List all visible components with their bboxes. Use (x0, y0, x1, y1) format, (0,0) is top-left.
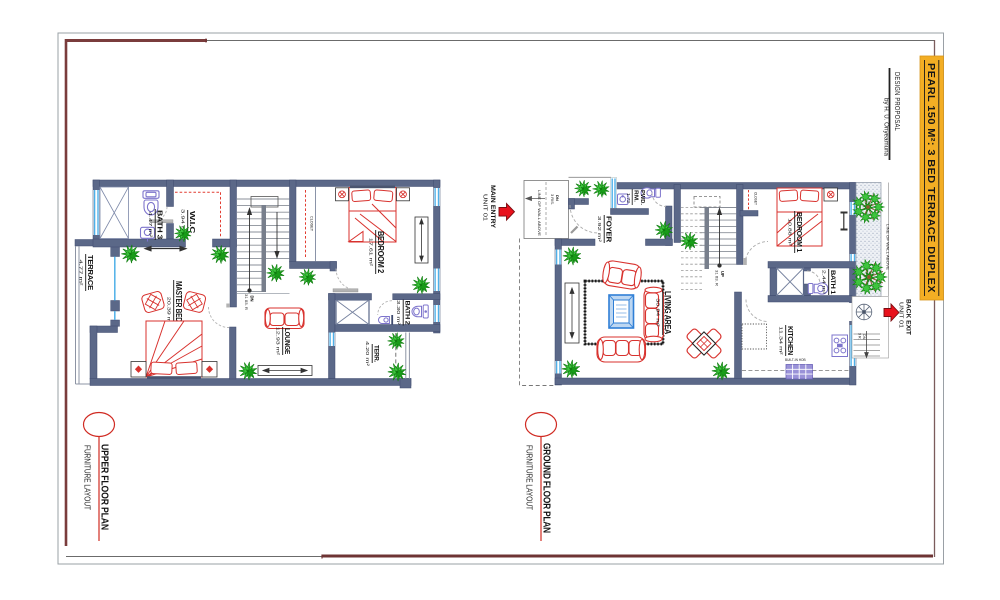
svg-text:BUILT-IN HOB: BUILT-IN HOB (785, 358, 806, 362)
svg-text:FURNITURE LAYOUT: FURNITURE LAYOUT (525, 445, 534, 510)
svg-text:LOUNGE: LOUNGE (283, 328, 292, 354)
svg-text:CLOSET: CLOSET (754, 192, 758, 206)
svg-text:2.44 m²: 2.44 m² (821, 270, 826, 295)
svg-text:KITCHEN: KITCHEN (786, 326, 795, 355)
svg-text:LINE OF WALL ABOVE: LINE OF WALL ABOVE (886, 224, 891, 270)
svg-text:3.30 m²: 3.30 m² (396, 300, 401, 326)
svg-text:BATH 1: BATH 1 (829, 270, 836, 295)
svg-text:PWD.: PWD. (639, 190, 645, 205)
svg-text:4.20 m²: 4.20 m² (365, 341, 370, 367)
svg-text:CLOSET: CLOSET (310, 216, 314, 232)
svg-text:BEDROOM 1: BEDROOM 1 (795, 212, 804, 252)
svg-text:30.94 m²: 30.94 m² (655, 298, 660, 327)
svg-text:4.47 m²: 4.47 m² (148, 212, 153, 239)
svg-text:3 RIS.: 3 RIS. (550, 194, 554, 205)
svg-text:PEARL 150 M²: 3 BED TERRACE DU: PEARL 150 M²: 3 BED TERRACE DUPLEX (925, 63, 936, 293)
svg-text:BEDROOM 2: BEDROOM 2 (376, 231, 385, 274)
svg-text:3 R.: 3 R. (858, 333, 862, 340)
svg-text:MAIN ENTRY: MAIN ENTRY (489, 185, 496, 229)
svg-text:FOYER: FOYER (605, 216, 614, 243)
svg-text:RM.: RM. (633, 190, 639, 202)
svg-text:31 03. R: 31 03. R (244, 294, 248, 310)
svg-text:BATH 3: BATH 3 (156, 210, 165, 239)
svg-text:BATH 2: BATH 2 (404, 301, 411, 326)
svg-text:4.77 m²: 4.77 m² (78, 260, 83, 287)
svg-text:12.93 m²: 12.93 m² (275, 327, 280, 356)
svg-text:LINE OF WALL ABOVE: LINE OF WALL ABOVE (537, 190, 542, 236)
svg-text:TERRACE: TERRACE (86, 255, 95, 290)
svg-text:DESIGN PROPOSAL: DESIGN PROPOSAL (893, 72, 902, 131)
svg-text:1.72: 1.72 (626, 193, 631, 204)
svg-text:GROUND FLOOR PLAN: GROUND FLOOR PLAN (541, 443, 553, 533)
svg-text:BACK EXIT: BACK EXIT (905, 299, 912, 335)
svg-text:UPPER FLOOR PLAN: UPPER FLOOR PLAN (99, 444, 111, 530)
svg-text:UNIT 01: UNIT 01 (482, 194, 488, 221)
svg-text:DN: DN (862, 334, 866, 340)
svg-text:DN: DN (555, 195, 560, 201)
svg-text:17.61 m²: 17.61 m² (368, 238, 373, 267)
svg-text:by H. U. Onyeamuna: by H. U. Onyeamuna (883, 98, 889, 157)
svg-text:10.88 m²: 10.88 m² (787, 218, 792, 246)
svg-text:11.34 m²: 11.34 m² (778, 326, 783, 355)
svg-text:3.92 m²: 3.92 m² (597, 216, 602, 243)
svg-text:31 03. R: 31 03. R (715, 270, 719, 286)
svg-text:TERR.: TERR. (373, 345, 380, 362)
svg-text:LIVING AREA: LIVING AREA (663, 291, 672, 335)
svg-text:UNIT 01: UNIT 01 (898, 302, 904, 328)
svg-text:UP: UP (720, 271, 725, 277)
svg-text:W.I.C: W.I.C (188, 211, 197, 234)
svg-text:DN: DN (250, 296, 255, 302)
svg-text:FURNITURE LAYOUT: FURNITURE LAYOUT (83, 445, 92, 510)
